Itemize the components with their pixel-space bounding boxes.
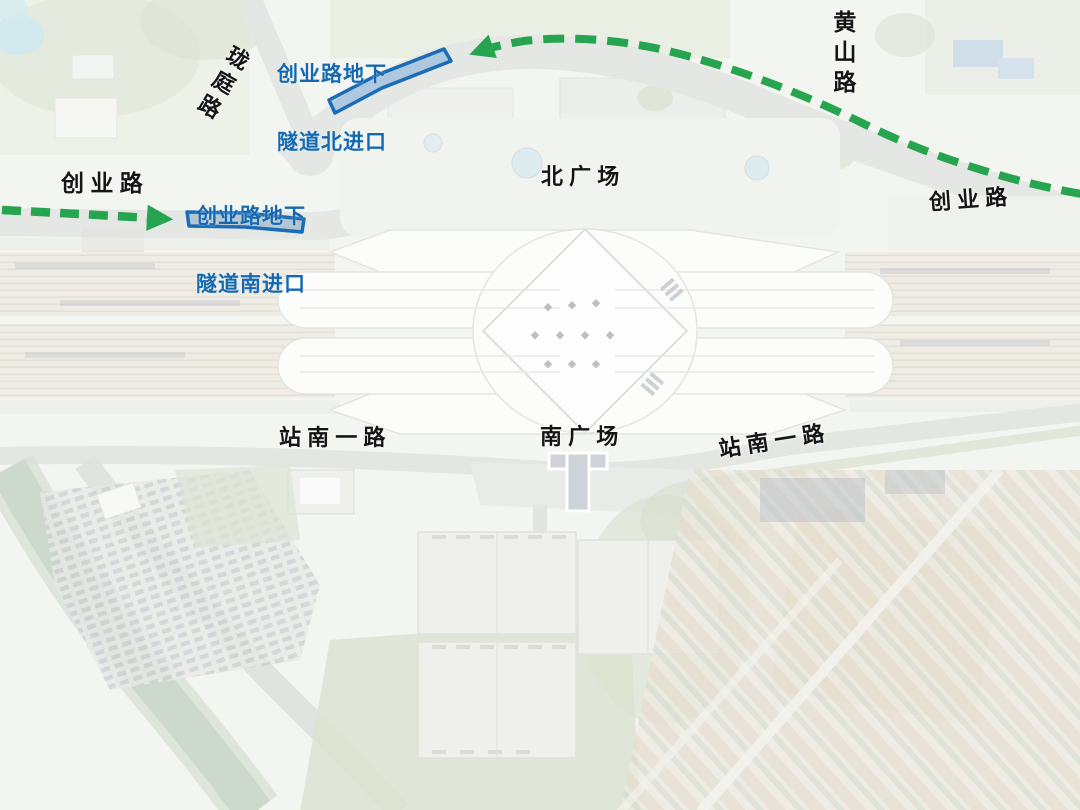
chuangye-road-west-label: 创 业 路: [61, 171, 143, 196]
south-square-label: 南 广 场: [540, 425, 618, 449]
north-square-label: 北 广 场: [541, 165, 619, 189]
map-canvas: 创业路地下 隧道北进口 创业路地下 隧道南进口 珑庭路 黄山路 创 业 路 创 …: [0, 0, 1080, 810]
chuangye-road-east-label: 创 业 路: [928, 185, 1008, 214]
north-tunnel-entrance-label-line2: 隧道北进口: [277, 132, 387, 155]
south-tunnel-entrance-label-line1: 创业路地下: [196, 206, 306, 229]
south-tunnel-entrance-label-line2: 隧道南进口: [196, 274, 306, 297]
south-tunnel-entrance-label: 创业路地下 隧道南进口: [196, 161, 306, 342]
station-south-road-west-label: 站 南 一 路: [279, 426, 385, 450]
route-overlay: [0, 0, 1080, 810]
route-arrow-west: [2, 210, 168, 219]
huangshan-road-label: 黄山路: [830, 10, 855, 100]
north-tunnel-entrance-label-line1: 创业路地下: [277, 64, 387, 87]
